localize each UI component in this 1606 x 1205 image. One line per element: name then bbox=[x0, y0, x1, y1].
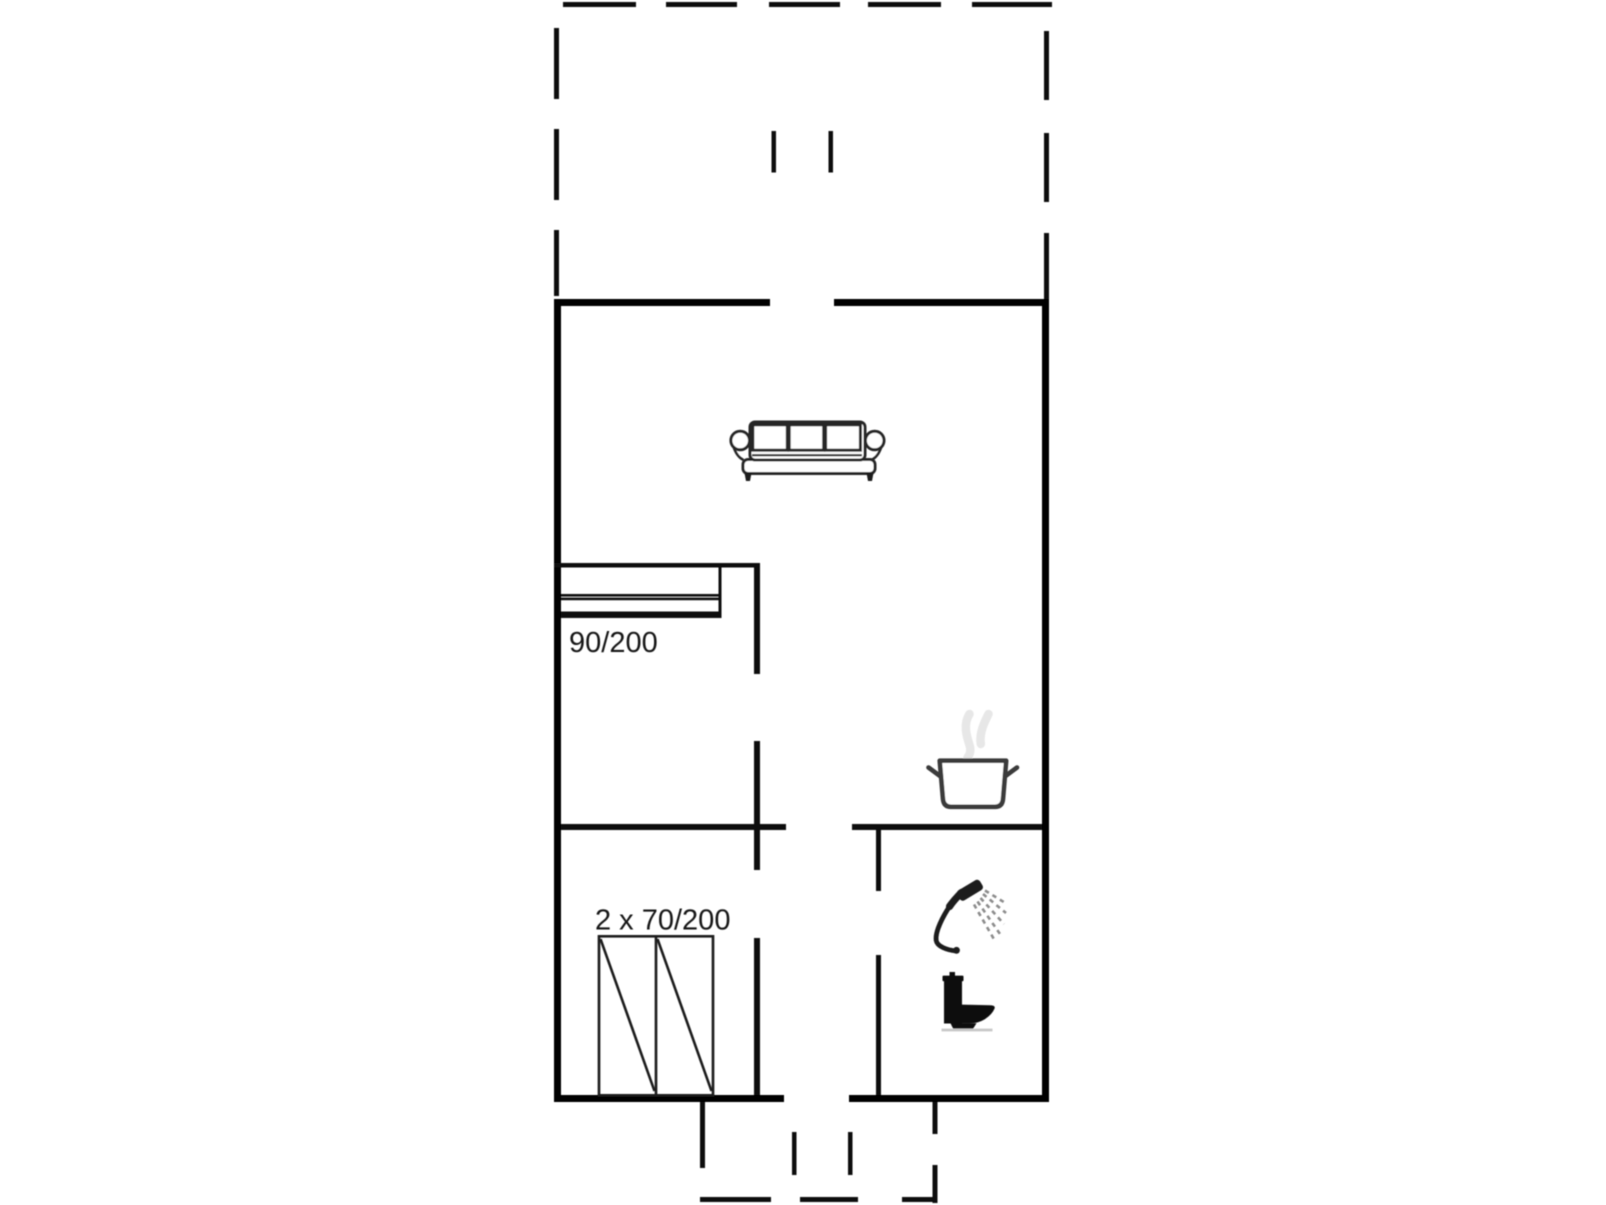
svg-text:2 x 70/200: 2 x 70/200 bbox=[595, 905, 730, 937]
svg-text:90/200: 90/200 bbox=[569, 627, 658, 659]
